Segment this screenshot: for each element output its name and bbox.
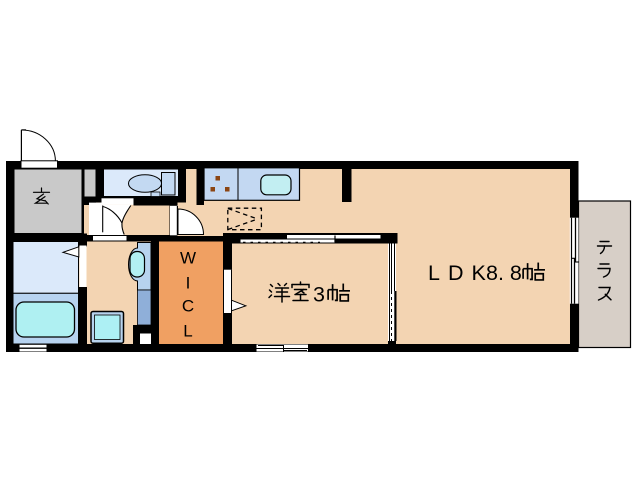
svg-text:8. 8: 8. 8 [486,261,522,285]
svg-text:LDK: LDK [428,261,494,285]
svg-text:L: L [183,322,192,341]
svg-text:C: C [182,297,194,316]
svg-text:I: I [186,274,191,293]
svg-text:3: 3 [313,283,325,307]
svg-text:W: W [180,249,196,268]
